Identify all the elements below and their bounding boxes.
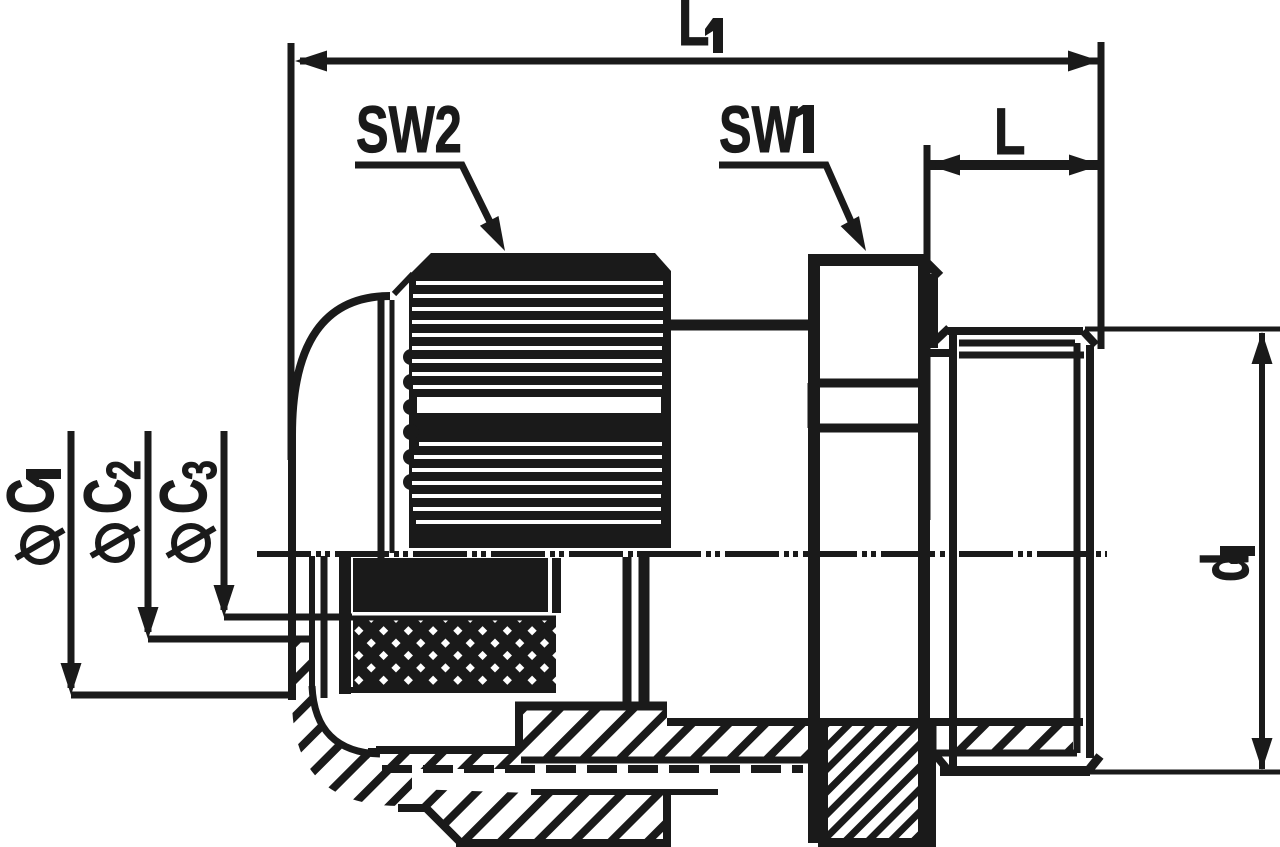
svg-text:2: 2 (98, 460, 151, 480)
svg-text:L: L (678, 0, 709, 59)
svg-text:L: L (994, 94, 1025, 168)
svg-text:C: C (146, 479, 220, 514)
svg-text:C: C (70, 479, 144, 514)
svg-text:SW: SW (719, 92, 798, 166)
svg-text:3: 3 (174, 460, 227, 480)
svg-text:SW2: SW2 (356, 92, 462, 166)
